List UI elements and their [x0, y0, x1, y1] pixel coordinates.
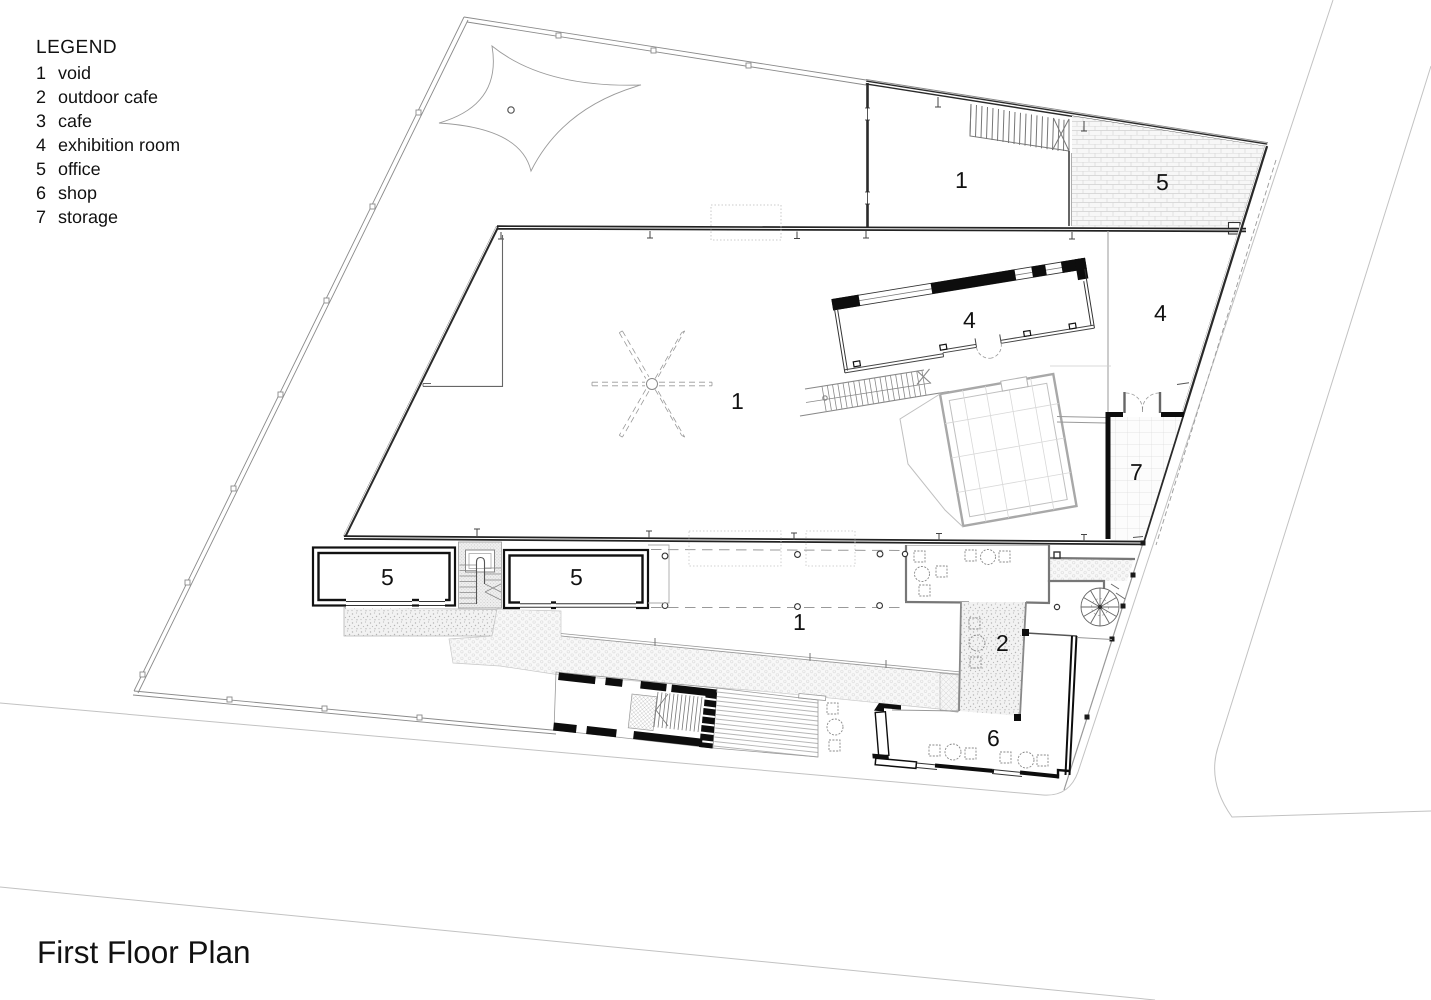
svg-text:5: 5	[381, 564, 394, 590]
svg-text:outdoor cafe: outdoor cafe	[58, 87, 158, 107]
svg-text:1: 1	[36, 63, 46, 83]
svg-text:6: 6	[987, 725, 1000, 751]
svg-text:6: 6	[36, 183, 46, 203]
svg-text:4: 4	[1154, 300, 1167, 326]
svg-text:4: 4	[36, 135, 46, 155]
svg-text:5: 5	[1156, 169, 1169, 195]
svg-text:First Floor Plan: First Floor Plan	[37, 934, 251, 970]
svg-text:exhibition room: exhibition room	[58, 135, 180, 155]
svg-text:1: 1	[955, 167, 968, 193]
svg-text:cafe: cafe	[58, 111, 92, 131]
svg-text:2: 2	[36, 87, 46, 107]
svg-text:1: 1	[793, 609, 806, 635]
svg-text:void: void	[58, 63, 91, 83]
svg-text:storage: storage	[58, 207, 118, 227]
svg-text:LEGEND: LEGEND	[36, 37, 117, 58]
svg-text:shop: shop	[58, 183, 97, 203]
svg-text:1: 1	[731, 388, 744, 414]
svg-text:7: 7	[36, 207, 46, 227]
svg-text:5: 5	[36, 159, 46, 179]
svg-text:office: office	[58, 159, 101, 179]
svg-text:4: 4	[963, 307, 976, 333]
svg-text:2: 2	[996, 630, 1009, 656]
svg-text:5: 5	[570, 564, 583, 590]
svg-text:3: 3	[36, 111, 46, 131]
svg-text:7: 7	[1130, 459, 1143, 485]
